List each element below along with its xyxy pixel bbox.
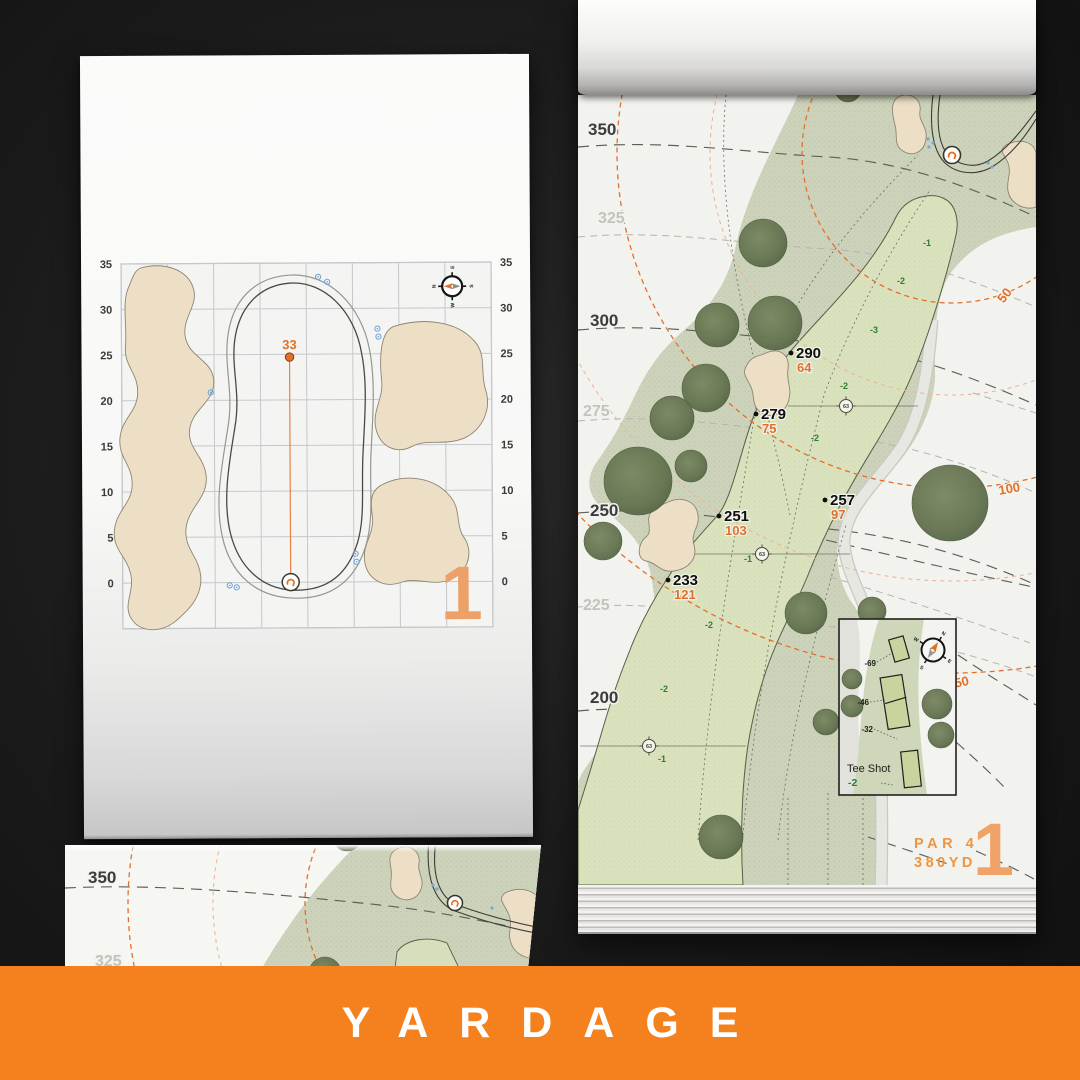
svg-text:0: 0	[108, 578, 114, 590]
next-spread-map: 350 325	[65, 845, 541, 968]
svg-text:97: 97	[831, 507, 845, 522]
svg-text:15: 15	[501, 439, 513, 451]
page-stack-edges	[578, 885, 1036, 934]
svg-text:25: 25	[100, 350, 112, 362]
svg-text:-69: -69	[864, 659, 876, 668]
svg-text:15: 15	[101, 441, 113, 453]
hole-number-left: 1	[440, 551, 483, 636]
tee-shot-title: Tee Shot	[847, 763, 890, 775]
bottom-left-page: 350 325	[65, 845, 541, 968]
svg-text:-32: -32	[861, 725, 873, 734]
svg-text:300: 300	[590, 311, 618, 330]
svg-text:20: 20	[501, 394, 513, 406]
svg-text:25: 25	[500, 348, 512, 360]
left-booklet-page: 33 35 30 25 20 15 10 5 0 35 30 25 20	[80, 54, 533, 839]
svg-text:10: 10	[101, 487, 113, 499]
svg-text:63: 63	[759, 552, 765, 558]
yardage-book-mockup: 33 35 30 25 20 15 10 5 0 35 30 25 20	[0, 0, 1080, 1080]
tee-shot-elevation: -2	[848, 777, 857, 789]
svg-text:10: 10	[501, 485, 513, 497]
inset-tree	[922, 689, 952, 719]
svg-text:-2: -2	[705, 620, 713, 630]
front-marker	[282, 574, 299, 591]
svg-text:-2: -2	[897, 276, 905, 286]
pin-depth-value: 33	[282, 337, 297, 352]
svg-text:-1: -1	[658, 754, 666, 764]
inset-tree	[842, 669, 862, 689]
svg-text:75: 75	[762, 421, 776, 436]
inset-tree	[928, 722, 954, 748]
svg-text:325: 325	[598, 210, 625, 227]
svg-text:250: 250	[590, 501, 618, 520]
distance-tick: 350	[88, 868, 116, 887]
svg-text:275: 275	[583, 403, 610, 420]
svg-text:35: 35	[500, 257, 512, 269]
pin-marker	[944, 147, 961, 164]
pin-position-dot	[285, 353, 293, 361]
svg-text:-46: -46	[857, 698, 869, 707]
svg-text:225: 225	[583, 597, 610, 614]
svg-text:-2: -2	[660, 684, 668, 694]
axis-left: 35 30 25 20 15 10 5 0	[100, 259, 114, 590]
svg-text:121: 121	[674, 587, 696, 602]
svg-text:5: 5	[107, 533, 113, 545]
title-banner: YARDAGE	[0, 966, 1080, 1080]
banner-title: YARDAGE	[311, 999, 770, 1048]
par-label: PAR 4	[914, 836, 978, 852]
svg-text:-3: -3	[870, 325, 878, 335]
hole-map-page: 63 63 63 350 325 300 275	[578, 95, 1036, 885]
svg-text:350: 350	[588, 120, 616, 139]
page-curl	[578, 0, 1036, 95]
svg-text:0: 0	[502, 576, 508, 588]
svg-text:-2: -2	[811, 433, 819, 443]
tee-shot-inset: -69 -46 -32 Tee Shot -2 N E S W	[839, 619, 964, 795]
svg-text:30: 30	[100, 305, 112, 317]
bunker-right-upper	[375, 321, 488, 450]
hole-map: 63 63 63 350 325 300 275	[578, 95, 1036, 885]
svg-text:-2: -2	[840, 381, 848, 391]
svg-text:W: W	[450, 303, 456, 308]
svg-text:63: 63	[843, 404, 849, 410]
svg-text:-1: -1	[744, 554, 752, 564]
hole-number-right: 1	[973, 808, 1014, 885]
svg-text:30: 30	[500, 303, 512, 315]
svg-text:-1: -1	[923, 238, 931, 248]
svg-text:103: 103	[725, 523, 747, 538]
svg-text:N: N	[432, 284, 438, 288]
svg-text:35: 35	[100, 259, 112, 271]
svg-text:5: 5	[501, 531, 507, 543]
tree	[333, 845, 361, 851]
pin-marker	[448, 896, 463, 911]
green-detail-diagram: 33 35 30 25 20 15 10 5 0 35 30 25 20	[80, 54, 533, 842]
svg-text:63: 63	[646, 744, 652, 750]
right-booklet: 63 63 63 350 325 300 275	[578, 0, 1036, 932]
axis-right: 35 30 25 20 15 10 5 0	[500, 257, 514, 588]
yardage-label: 380YD	[914, 855, 976, 871]
svg-text:20: 20	[100, 396, 112, 408]
svg-text:64: 64	[797, 360, 812, 375]
svg-text:200: 200	[590, 688, 618, 707]
